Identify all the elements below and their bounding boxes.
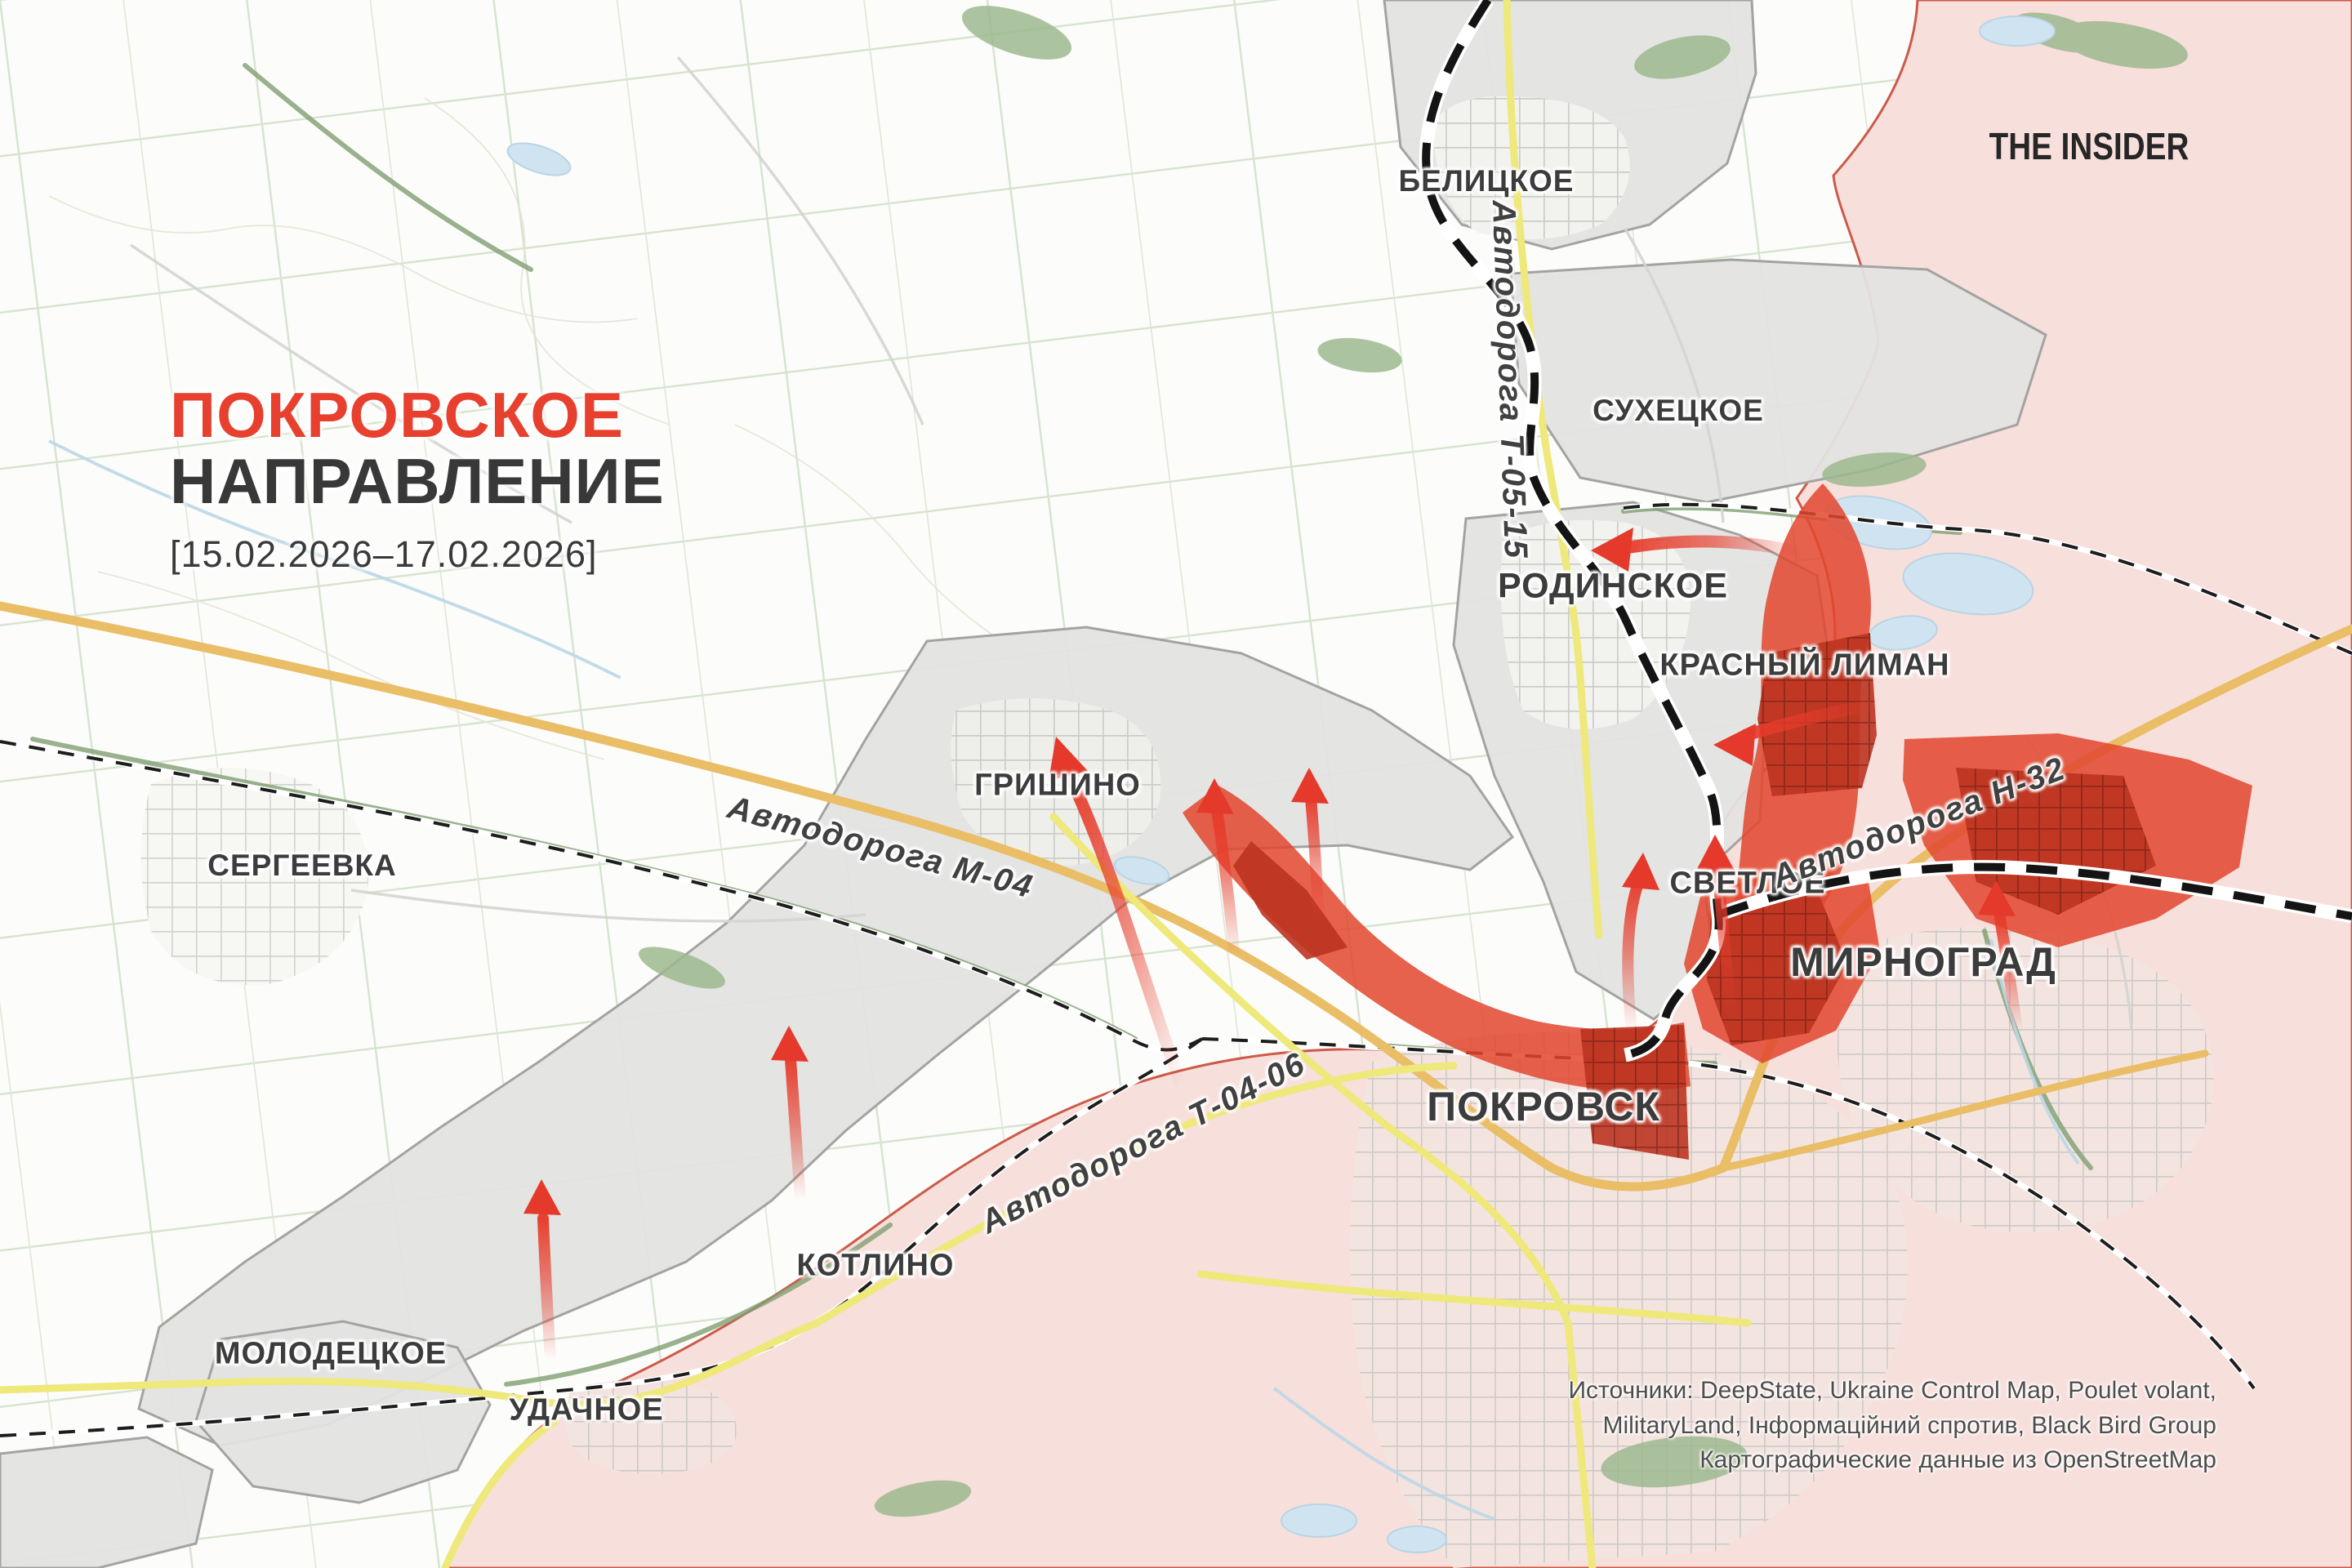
map-infographic: БЕЛИЦКОЕ СУХЕЦКОЕ РОДИНСКОЕ КРАСНЫЙ ЛИМА… [0, 0, 2352, 1568]
settlement-label-grishino: ГРИШИНО [974, 768, 1141, 804]
date-range: [15.02.2026–17.02.2026] [170, 536, 665, 574]
settlement-label-udachnoe: УДАЧНОЕ [509, 1393, 663, 1428]
settlement-label-pokrovsk: ПОКРОВСК [1427, 1083, 1660, 1130]
attribution-sources-line2: MilitaryLand, Інформаційний спротив, Bla… [1568, 1409, 2216, 1444]
attribution-block: Источники: DeepState, Ukraine Control Ma… [1568, 1374, 2216, 1478]
the-insider-logo: THE INSIDER [1989, 124, 2189, 168]
settlement-label-rodinskoe: РОДИНСКОЕ [1498, 567, 1728, 607]
settlement-label-krasny-liman: КРАСНЫЙ ЛИМАН [1659, 648, 1949, 684]
settlement-label-sukhetskoe: СУХЕЦКОЕ [1592, 394, 1764, 428]
settlement-label-mirnograd: МИРНОГРАД [1790, 938, 2056, 986]
settlement-label-sergeevka: СЕРГЕЕВКА [207, 849, 396, 883]
attribution-osm: Картографические данные из OpenStreetMap [1568, 1443, 2216, 1478]
map-title-accent: ПОКРОВСКОЕ [170, 382, 665, 448]
title-block: ПОКРОВСКОЕ НАПРАВЛЕНИЕ [15.02.2026–17.02… [170, 382, 665, 574]
settlement-label-molodetskoe: МОЛОДЕЦКОЕ [215, 1337, 447, 1372]
map-title: НАПРАВЛЕНИЕ [170, 448, 665, 514]
settlement-label-kotlino: КОТЛИНО [797, 1249, 955, 1284]
attribution-sources-line1: Источники: DeepState, Ukraine Control Ma… [1568, 1374, 2216, 1409]
settlement-label-belitskoe: БЕЛИЦКОЕ [1399, 164, 1575, 198]
